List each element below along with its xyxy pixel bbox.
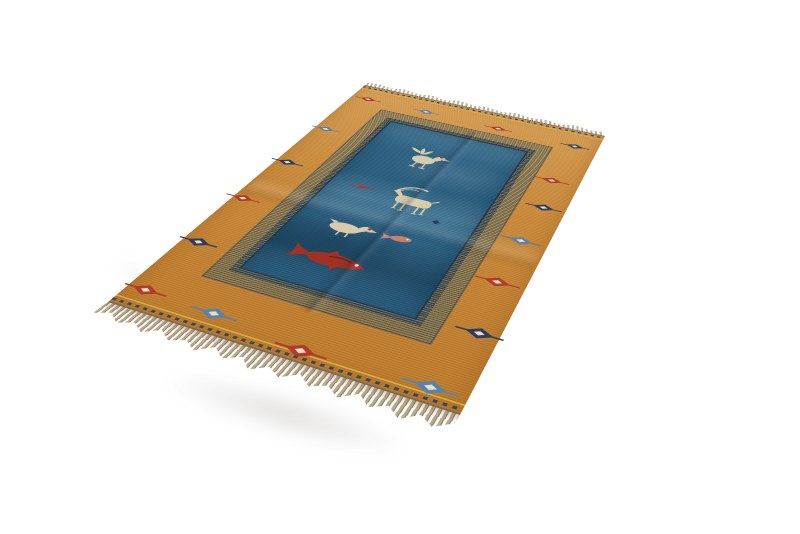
border-eye-motif [186,302,241,326]
border-eye-motif [399,372,463,402]
photo-canvas [0,0,800,534]
dot-motif [431,219,441,225]
border-eye-motif [269,156,306,169]
border-eye-motif [223,191,263,206]
border-eye-motif [483,124,514,134]
border-eye-motif [452,322,506,346]
border-eye-motif [499,232,543,249]
arrow-fish-motif [350,183,376,191]
border-eye-motif [533,174,571,187]
border-eye-motif [524,200,564,215]
border-eye-motif [559,141,590,151]
border-eye-motif [353,95,382,104]
border-eye-motif [176,233,221,251]
border-eye-motif [472,272,522,292]
border-eye-motif [411,107,441,116]
border-eye-motif [309,124,342,135]
